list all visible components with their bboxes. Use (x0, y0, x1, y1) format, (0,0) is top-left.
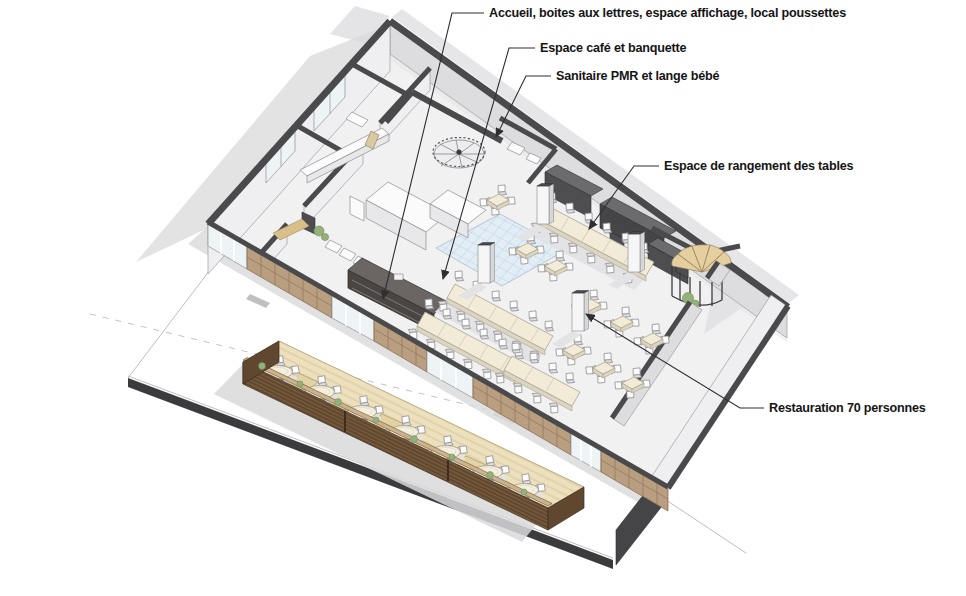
annotation-cafe: Espace café et banquette (540, 41, 687, 55)
annotation-accueil: Accueil, boites aux lettres, espace affi… (489, 6, 846, 20)
annotation-rangement: Espace de rangement des tables (664, 159, 853, 173)
architectural-diagram-page: Accueil, boites aux lettres, espace affi… (0, 0, 966, 596)
espresso-machine (394, 274, 403, 280)
floor-plan-drawing: Accueil, boites aux lettres, espace affi… (0, 0, 966, 596)
annotation-sanitaire: Sanitaire PMR et lange bébé (556, 69, 719, 83)
annotation-restauration: Restauration 70 personnes (769, 401, 926, 415)
road-marking-dash (246, 294, 270, 308)
